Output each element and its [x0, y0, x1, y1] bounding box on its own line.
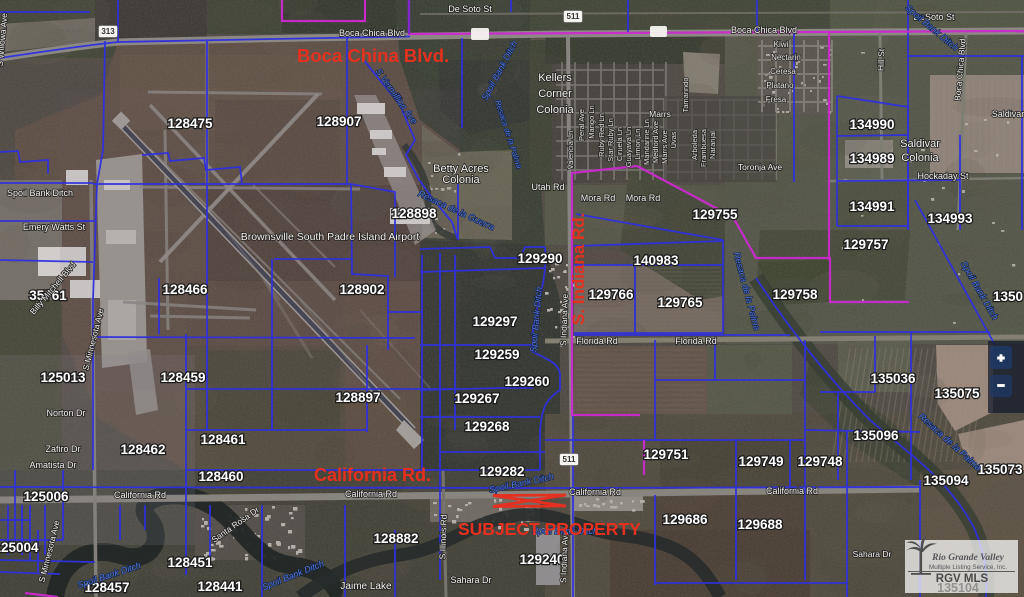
- svg-text:1350: 1350: [993, 289, 1023, 304]
- svg-text:140983: 140983: [633, 253, 679, 268]
- svg-text:Sahara Dr: Sahara Dr: [450, 575, 491, 585]
- svg-text:Amatista Dr: Amatista Dr: [29, 460, 76, 470]
- svg-text:Star Ruby Ln: Star Ruby Ln: [606, 118, 615, 162]
- svg-text:Platano: Platano: [766, 81, 794, 90]
- svg-text:Ceresa: Ceresa: [770, 67, 796, 76]
- svg-text:128897: 128897: [335, 390, 380, 405]
- svg-text:Nectarin: Nectarin: [771, 53, 801, 62]
- svg-text:125013: 125013: [40, 370, 86, 385]
- svg-text:Colonia: Colonia: [442, 174, 480, 186]
- svg-text:Mango Ln: Mango Ln: [587, 105, 596, 138]
- svg-text:Saldivar: Saldivar: [900, 138, 940, 150]
- svg-text:Florida Rd: Florida Rd: [675, 336, 717, 346]
- svg-text:Marrs Ave: Marrs Ave: [660, 130, 669, 164]
- svg-text:Colonia: Colonia: [536, 104, 574, 116]
- svg-text:Florida Rd: Florida Rd: [576, 336, 618, 346]
- svg-text:Mandarine Ln: Mandarine Ln: [642, 119, 651, 165]
- svg-text:California Rd: California Rd: [766, 486, 818, 496]
- svg-text:128902: 128902: [339, 282, 384, 297]
- svg-text:Frambuesa: Frambuesa: [699, 128, 708, 167]
- svg-text:134991: 134991: [849, 199, 895, 214]
- svg-text:Brownsville South Padre Island: Brownsville South Padre Island Airport: [241, 231, 420, 243]
- svg-text:128466: 128466: [162, 282, 208, 297]
- svg-text:129297: 129297: [472, 314, 517, 329]
- svg-text:Uvas: Uvas: [669, 131, 678, 148]
- svg-text:128907: 128907: [316, 114, 361, 129]
- svg-text:129259: 129259: [474, 347, 519, 362]
- svg-text:Emery Watts St: Emery Watts St: [23, 222, 86, 232]
- svg-text:134993: 134993: [927, 211, 973, 226]
- svg-text:135036: 135036: [870, 371, 916, 386]
- svg-text:135096: 135096: [853, 428, 899, 443]
- svg-text:128882: 128882: [373, 531, 418, 546]
- svg-text:Hockaday St: Hockaday St: [917, 171, 969, 181]
- svg-text:129749: 129749: [738, 454, 783, 469]
- svg-text:Toronja Ave: Toronja Ave: [738, 162, 783, 172]
- svg-text:128460: 128460: [198, 469, 243, 484]
- svg-text:129267: 129267: [454, 391, 499, 406]
- svg-text:Boca Chica Blvd: Boca Chica Blvd: [731, 25, 797, 35]
- svg-text:129290: 129290: [517, 251, 562, 266]
- svg-text:Tamarindo: Tamarindo: [681, 77, 690, 112]
- svg-text:Colonia: Colonia: [901, 152, 939, 164]
- svg-text:Sahara Dr: Sahara Dr: [853, 549, 892, 559]
- svg-text:Marrs: Marrs: [649, 109, 671, 119]
- svg-text:129748: 129748: [797, 454, 843, 469]
- svg-text:SUBJECT PROPERTY: SUBJECT PROPERTY: [458, 519, 641, 539]
- svg-text:135075: 135075: [934, 386, 980, 401]
- svg-text:Multiple Listing Service, Inc.: Multiple Listing Service, Inc.: [929, 564, 1007, 571]
- svg-text:Mora Rd: Mora Rd: [581, 193, 616, 203]
- svg-text:Hill St: Hill St: [876, 48, 887, 71]
- svg-text:Boca Chica Blvd: Boca Chica Blvd: [339, 28, 405, 38]
- svg-text:S. Indiana Rd.: S. Indiana Rd.: [569, 213, 588, 325]
- svg-text:Corner: Corner: [538, 88, 572, 100]
- svg-text:129765: 129765: [657, 295, 703, 310]
- svg-text:135073: 135073: [977, 462, 1023, 477]
- svg-text:128441: 128441: [197, 579, 243, 594]
- svg-text:Peral Ave: Peral Ave: [577, 109, 586, 141]
- svg-text:Ciruela Ln: Ciruela Ln: [615, 127, 624, 161]
- svg-text:Valencia Ln: Valencia Ln: [566, 131, 575, 170]
- svg-text:Fresa: Fresa: [766, 95, 787, 104]
- svg-text:California Rd: California Rd: [345, 489, 397, 499]
- svg-text:De Soto St: De Soto St: [448, 4, 492, 14]
- svg-text:129260: 129260: [504, 374, 549, 389]
- svg-text:511: 511: [567, 12, 580, 21]
- svg-text:128461: 128461: [200, 432, 246, 447]
- svg-text:Naranjal: Naranjal: [708, 131, 717, 159]
- svg-text:California Rd: California Rd: [114, 490, 166, 500]
- svg-text:Utah Rd: Utah Rd: [531, 182, 564, 192]
- svg-text:Saldivar: Saldivar: [992, 109, 1024, 119]
- svg-text:128459: 128459: [160, 370, 205, 385]
- svg-text:134989: 134989: [849, 151, 894, 166]
- svg-text:129751: 129751: [643, 447, 689, 462]
- svg-text:129282: 129282: [479, 464, 524, 479]
- svg-text:Kiwi: Kiwi: [774, 40, 789, 49]
- svg-text:128898: 128898: [391, 206, 437, 221]
- svg-text:128451: 128451: [167, 555, 213, 570]
- svg-text:125006: 125006: [23, 489, 69, 504]
- svg-text:Boca China Blvd.: Boca China Blvd.: [297, 45, 449, 66]
- svg-text:135094: 135094: [923, 473, 969, 488]
- svg-text:313: 313: [101, 27, 115, 36]
- svg-text:Limon Ln: Limon Ln: [633, 129, 642, 160]
- svg-text:Rio Grande Valley: Rio Grande Valley: [931, 553, 1005, 563]
- svg-text:129686: 129686: [662, 512, 708, 527]
- svg-text:Mora Rd: Mora Rd: [626, 193, 661, 203]
- svg-text:128475: 128475: [167, 116, 213, 131]
- svg-text:California Rd.: California Rd.: [314, 465, 431, 485]
- svg-text:129688: 129688: [737, 517, 783, 532]
- svg-text:Kellers: Kellers: [538, 72, 572, 84]
- svg-text:129268: 129268: [464, 419, 510, 434]
- svg-text:California Rd: California Rd: [569, 487, 621, 497]
- svg-text:129758: 129758: [772, 287, 818, 302]
- svg-text:Norton Dr: Norton Dr: [46, 408, 85, 418]
- svg-text:Medford Ave: Medford Ave: [651, 121, 660, 163]
- svg-text:134990: 134990: [849, 117, 894, 132]
- svg-text:511: 511: [563, 455, 576, 464]
- svg-text:129755: 129755: [692, 207, 738, 222]
- svg-text:Ruby Red Ln: Ruby Red Ln: [597, 113, 606, 157]
- svg-text:S Illinois Rd: S Illinois Rd: [437, 514, 449, 559]
- svg-text:Zafiro Dr: Zafiro Dr: [45, 444, 80, 454]
- svg-text:125004: 125004: [0, 540, 39, 555]
- svg-text:Guayava Ln: Guayava Ln: [624, 127, 633, 167]
- svg-text:128462: 128462: [120, 442, 165, 457]
- svg-text:Spoil Bank Ditch: Spoil Bank Ditch: [7, 188, 73, 198]
- svg-text:135104: 135104: [937, 581, 979, 595]
- svg-text:129766: 129766: [588, 287, 634, 302]
- svg-text:129757: 129757: [843, 237, 888, 252]
- svg-text:Jaime Lake: Jaime Lake: [340, 581, 392, 592]
- svg-text:Arboleda: Arboleda: [690, 129, 699, 160]
